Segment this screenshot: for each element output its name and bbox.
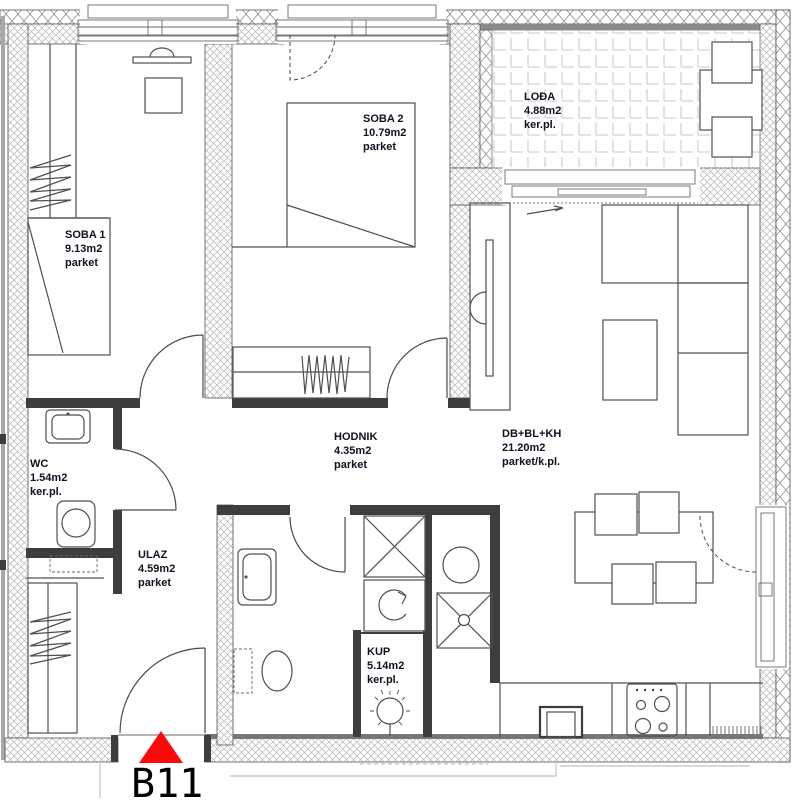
svg-text:9.13m2: 9.13m2 (65, 243, 102, 255)
svg-text:4.59m2: 4.59m2 (138, 563, 175, 575)
svg-text:parket: parket (334, 459, 367, 471)
svg-text:parket/k.pl.: parket/k.pl. (502, 456, 560, 468)
chair-icon (656, 562, 696, 603)
chair-icon (712, 42, 752, 83)
room-label-dnevni: DB+BL+KH (502, 428, 561, 440)
unit-label: B11 (131, 761, 203, 800)
room-label-lodja: LOĐA (524, 91, 555, 103)
window-soba2-icon (276, 4, 448, 44)
chair-icon (612, 564, 653, 604)
svg-text:ker.pl.: ker.pl. (30, 486, 62, 498)
room-label-kup: KUP (367, 646, 390, 658)
svg-text:parket: parket (138, 577, 171, 589)
window-soba1-icon (78, 4, 238, 44)
svg-text:4.88m2: 4.88m2 (524, 105, 561, 117)
svg-text:1.54m2: 1.54m2 (30, 472, 67, 484)
svg-text:10.79m2: 10.79m2 (363, 127, 406, 139)
room-label-ulaz: ULAZ (138, 549, 168, 561)
entrance-jamb-left (111, 735, 118, 762)
svg-text:5.14m2: 5.14m2 (367, 660, 404, 672)
floor-plan-drawing: SOBA 1 9.13m2 parket SOBA 2 10.79m2 park… (0, 0, 800, 800)
loggia-top-edge (460, 24, 760, 30)
left-outer-strip (1, 16, 5, 760)
room-label-soba1: SOBA 1 (65, 229, 106, 241)
room-label-wc: WC (30, 458, 48, 470)
chair-icon (712, 117, 752, 157)
svg-text:ker.pl.: ker.pl. (367, 674, 399, 686)
svg-text:parket: parket (363, 141, 396, 153)
floor-plan-sheet: SOBA 1 9.13m2 parket SOBA 2 10.79m2 park… (0, 0, 800, 800)
entrance-jamb-right (204, 735, 211, 762)
svg-text:ker.pl.: ker.pl. (524, 119, 556, 131)
svg-text:parket: parket (65, 257, 98, 269)
svg-text:4.35m2: 4.35m2 (334, 445, 371, 457)
room-label-hodnik: HODNIK (334, 431, 377, 443)
window-loggia-living-icon (502, 167, 700, 205)
svg-text:21.20m2: 21.20m2 (502, 442, 545, 454)
chair-icon (595, 494, 637, 535)
room-label-soba2: SOBA 2 (363, 113, 404, 125)
kitchen-wall-edge (205, 734, 763, 739)
chair-icon (639, 492, 679, 533)
